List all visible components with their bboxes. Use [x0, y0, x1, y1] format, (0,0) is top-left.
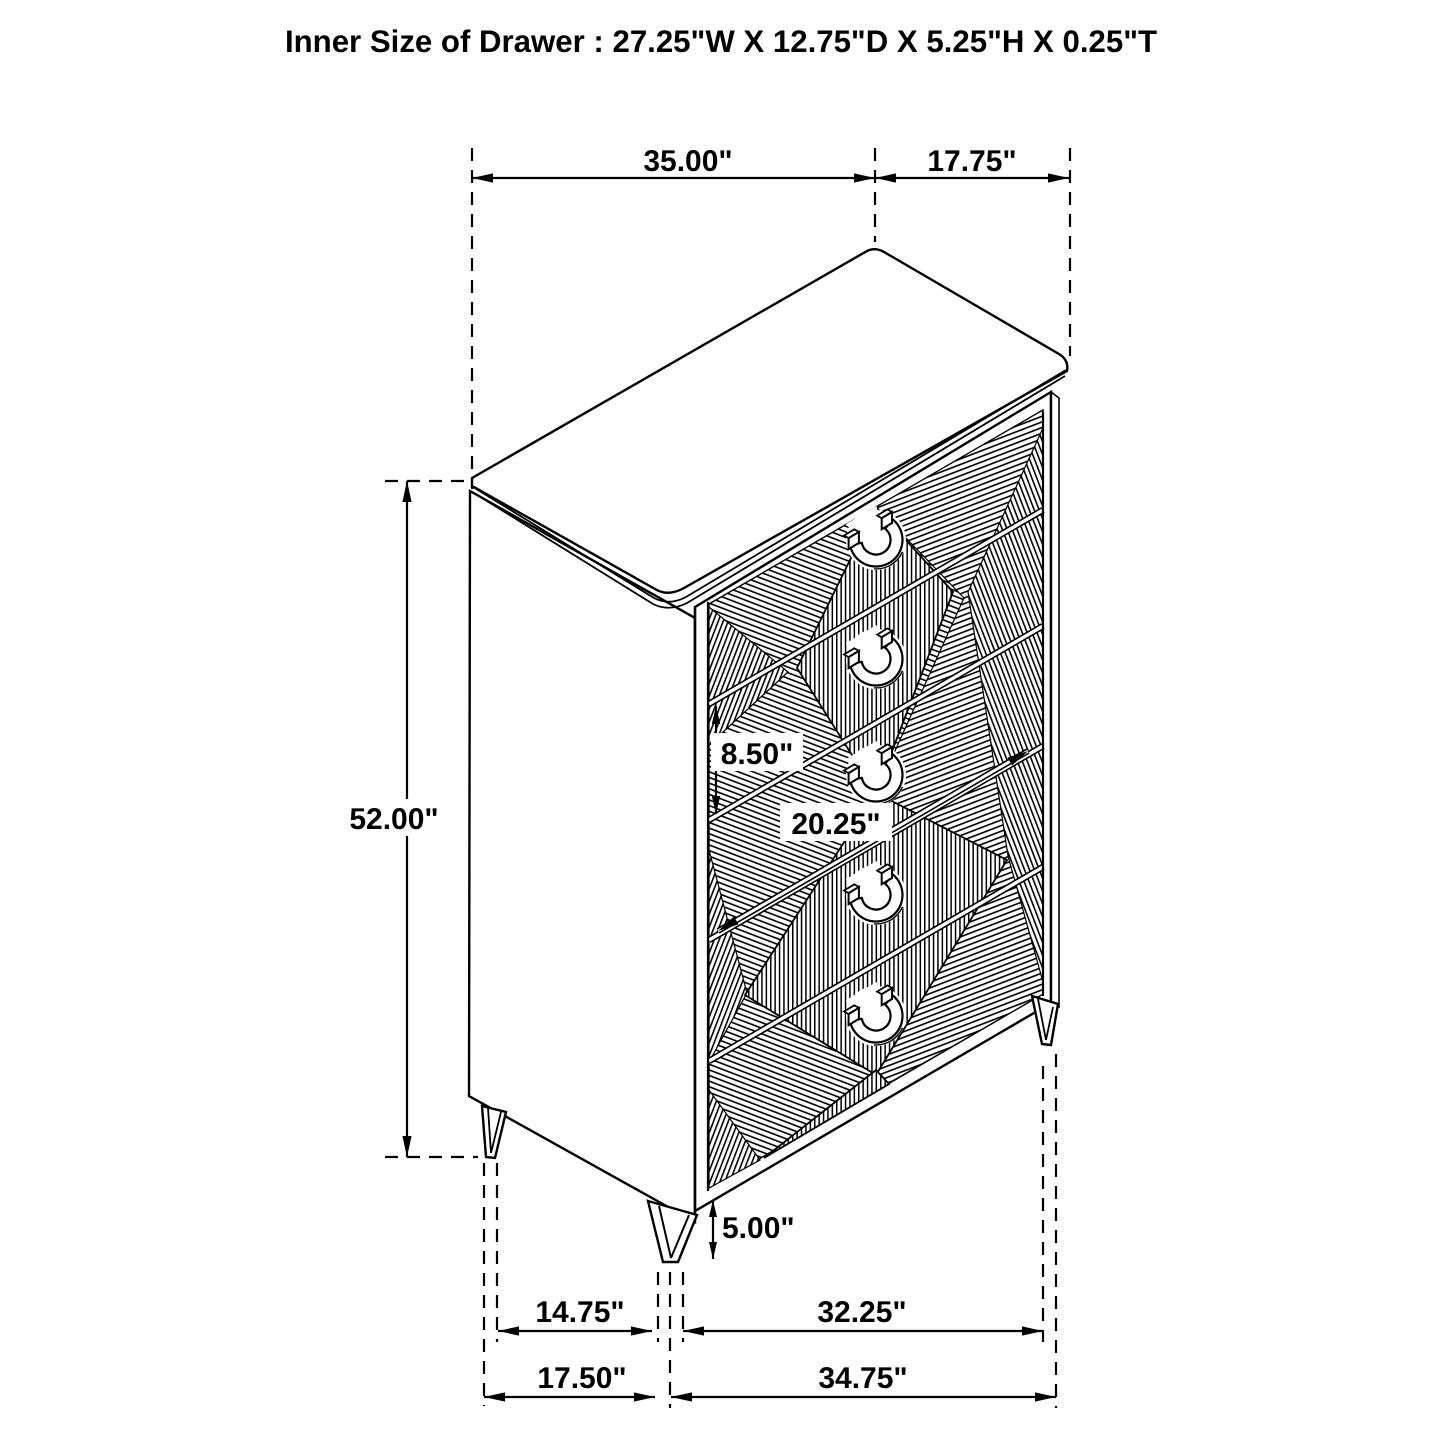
svg-text:17.75": 17.75" — [927, 145, 1016, 178]
svg-text:17.50": 17.50" — [537, 1362, 626, 1395]
svg-text:5.00": 5.00" — [722, 1212, 795, 1245]
svg-text:14.75": 14.75" — [535, 1296, 624, 1329]
svg-text:20.25": 20.25" — [791, 808, 880, 841]
svg-text:8.50": 8.50" — [721, 738, 794, 771]
svg-text:32.25": 32.25" — [817, 1296, 906, 1329]
svg-text:34.75": 34.75" — [818, 1362, 907, 1395]
svg-text:52.00": 52.00" — [349, 803, 438, 836]
svg-text:Inner Size of Drawer : 27.25"W: Inner Size of Drawer : 27.25"W X 12.75"D… — [285, 24, 1157, 59]
svg-text:35.00": 35.00" — [643, 145, 732, 178]
